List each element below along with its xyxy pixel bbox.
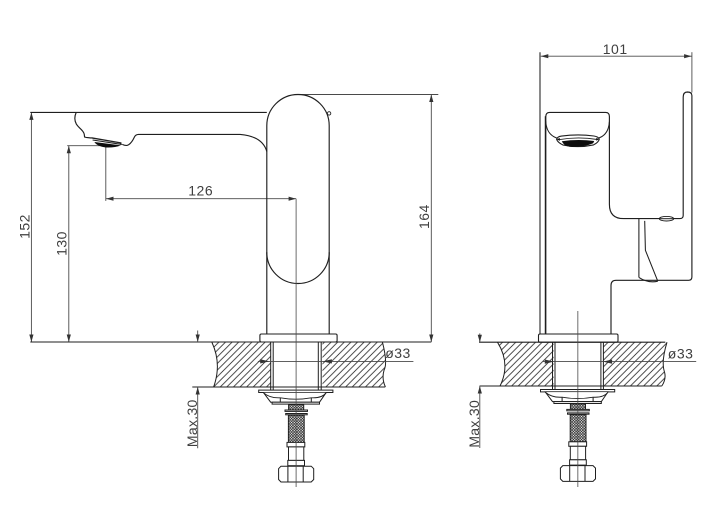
svg-text:Max.30: Max.30 — [466, 400, 482, 448]
svg-text:164: 164 — [416, 204, 432, 229]
svg-text:Max.30: Max.30 — [184, 399, 200, 447]
svg-text:101: 101 — [603, 41, 628, 57]
svg-text:ø33: ø33 — [668, 346, 694, 362]
svg-text:126: 126 — [188, 183, 213, 199]
svg-text:ø33: ø33 — [385, 345, 411, 361]
svg-text:152: 152 — [16, 214, 32, 239]
svg-text:130: 130 — [53, 231, 69, 256]
